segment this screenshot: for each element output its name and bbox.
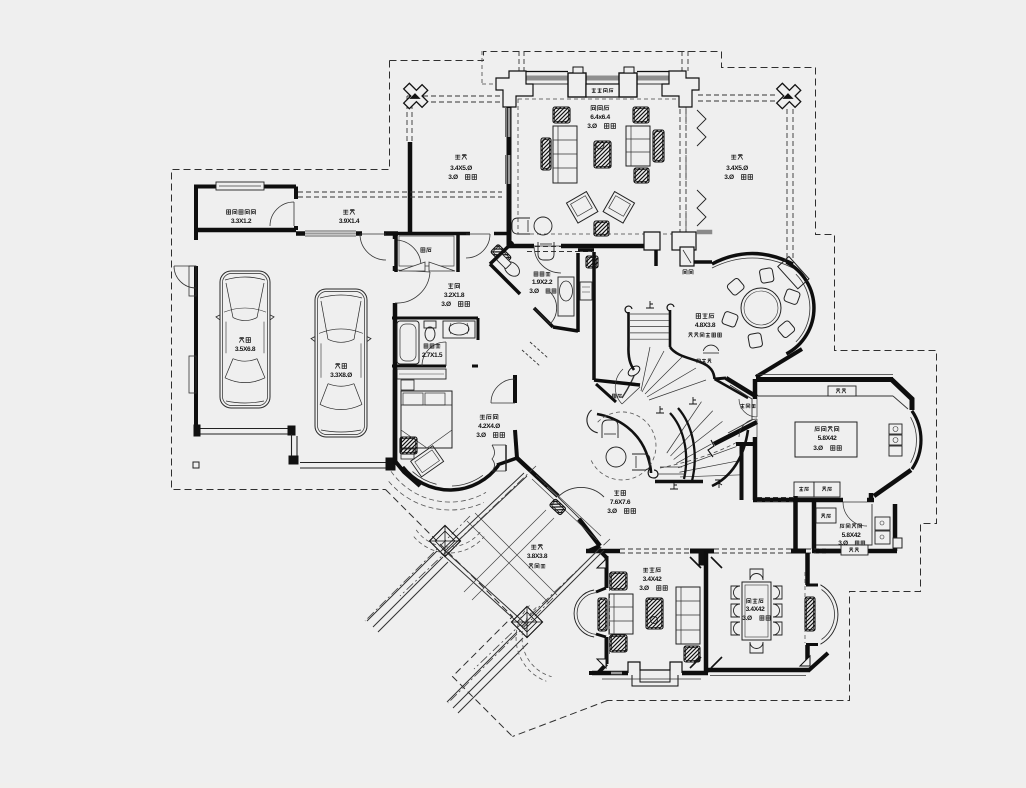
svg-text:1.9X2.2: 1.9X2.2 (532, 279, 553, 286)
svg-text:5.8X42: 5.8X42 (818, 435, 837, 442)
svg-text:3.4X5.Ø: 3.4X5.Ø (726, 165, 748, 172)
svg-text:3.3X1.2: 3.3X1.2 (231, 218, 252, 225)
svg-text:3.8X3.8: 3.8X3.8 (527, 553, 548, 560)
svg-text:7.6X7.6: 7.6X7.6 (610, 499, 631, 506)
svg-text:2.7X1.5: 2.7X1.5 (422, 352, 443, 359)
svg-text:3.4X5.Ø: 3.4X5.Ø (450, 165, 472, 172)
svg-text:3.Ø: 3.Ø (838, 540, 848, 547)
svg-text:3.Ø: 3.Ø (742, 615, 752, 622)
svg-text:4.2X4.Ø: 4.2X4.Ø (478, 423, 500, 430)
svg-text:3.Ø: 3.Ø (607, 508, 617, 515)
svg-text:3.4X42: 3.4X42 (643, 576, 662, 583)
svg-text:3.Ø: 3.Ø (441, 301, 451, 308)
svg-text:3.Ø: 3.Ø (813, 445, 823, 452)
svg-text:3.Ø: 3.Ø (587, 123, 597, 130)
svg-text:3.5X6.8: 3.5X6.8 (235, 346, 256, 353)
svg-text:3.4X42: 3.4X42 (746, 606, 765, 613)
svg-text:3.Ø: 3.Ø (639, 585, 649, 592)
svg-text:6.4x6.4: 6.4x6.4 (590, 114, 610, 121)
svg-text:3.2X1.8: 3.2X1.8 (444, 292, 465, 299)
svg-text:3.Ø: 3.Ø (529, 288, 539, 295)
svg-text:3.9X1.4: 3.9X1.4 (339, 218, 360, 225)
svg-text:3.Ø: 3.Ø (448, 174, 458, 181)
svg-text:3.Ø: 3.Ø (724, 174, 734, 181)
svg-text:3.3X8.Ø: 3.3X8.Ø (330, 372, 352, 379)
svg-text:5.8X42: 5.8X42 (842, 532, 861, 539)
svg-text:3.Ø: 3.Ø (476, 432, 486, 439)
svg-text:4.8X3.8: 4.8X3.8 (695, 322, 716, 329)
